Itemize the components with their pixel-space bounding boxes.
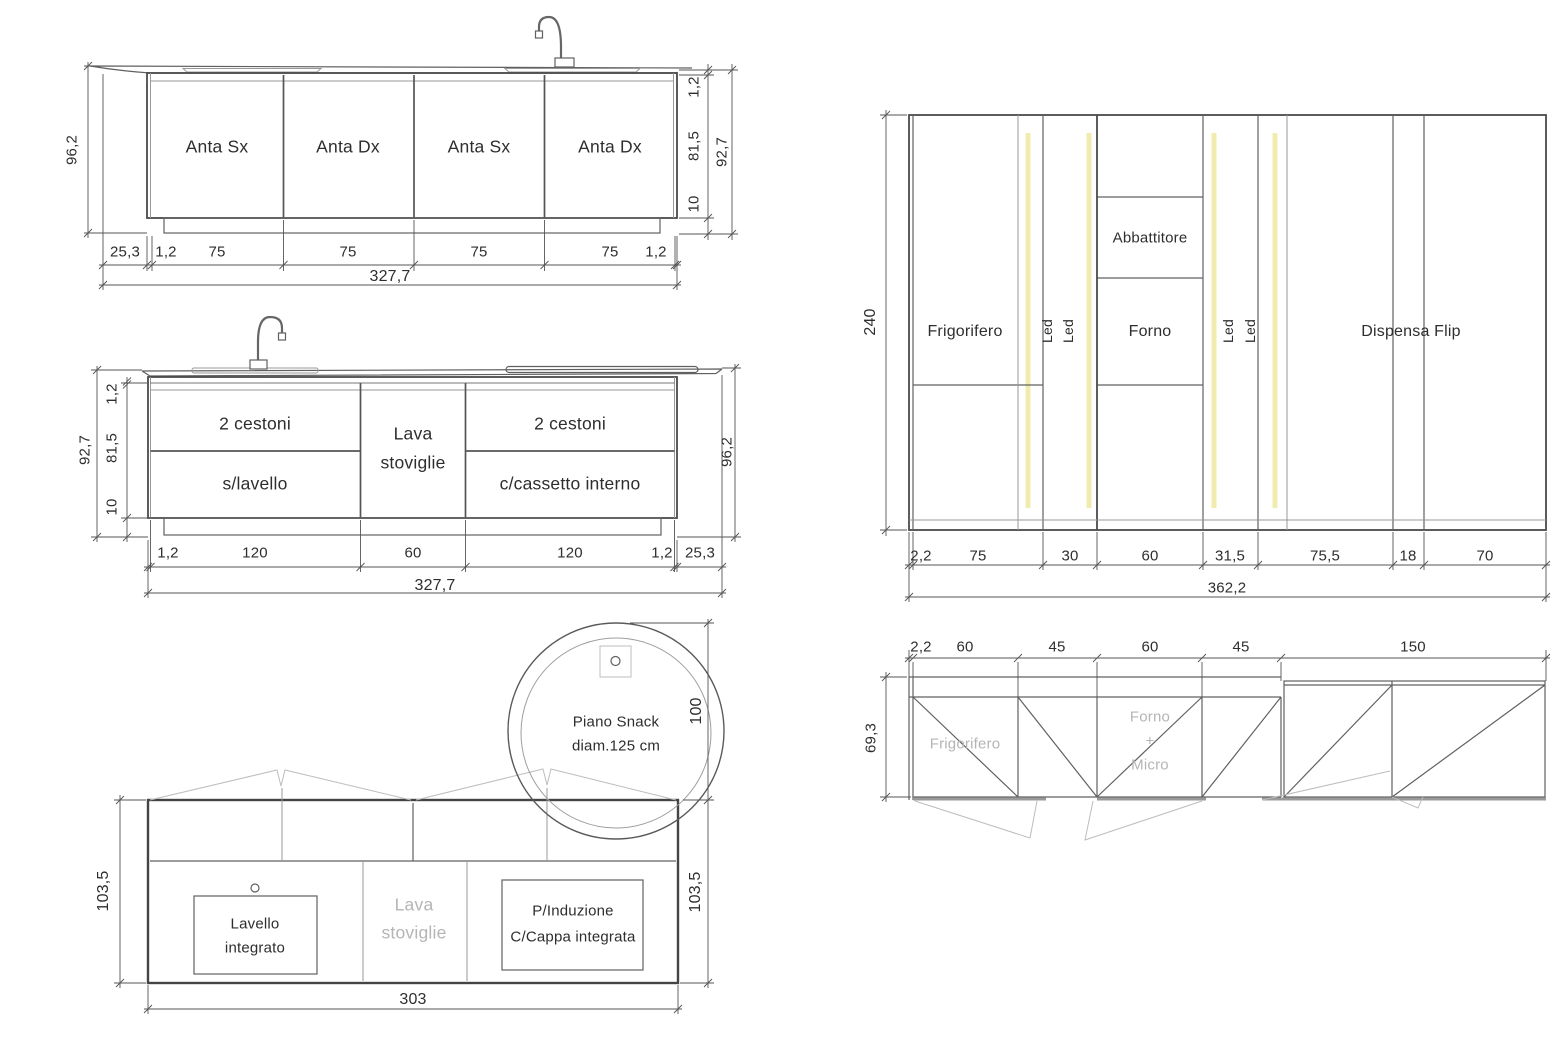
- drawing-linework: [0, 0, 1565, 1055]
- dim-label: 96,2: [65, 135, 80, 165]
- led-label: Led: [1243, 319, 1257, 343]
- snack-top-label: Piano Snack: [573, 715, 659, 730]
- dim-label: 25,3: [110, 245, 140, 260]
- oven-micro-label: Micro: [1131, 758, 1169, 773]
- dim-label: 1,2: [687, 76, 702, 97]
- dim-label: 100: [689, 697, 705, 724]
- dim-label: 75: [969, 549, 986, 564]
- dishwasher-label: stoviglie: [381, 924, 446, 942]
- dim-label: 60: [404, 546, 421, 561]
- dim-label: 81,5: [687, 131, 702, 161]
- dim-label: 2,2: [910, 549, 931, 564]
- section-label: 2 cestoni: [534, 415, 606, 433]
- snack-top-label: diam.125 cm: [572, 739, 660, 754]
- oven-label: Forno: [1129, 324, 1172, 340]
- led-label: Led: [1061, 319, 1075, 343]
- dim-label: 10: [105, 498, 120, 515]
- dim-total-label: 303: [399, 992, 426, 1008]
- dim-total-label: 327,7: [369, 269, 410, 285]
- dim-label: 75: [601, 245, 618, 260]
- dim-label: 30: [1061, 549, 1078, 564]
- dim-label: 120: [557, 546, 583, 561]
- blast-chiller-label: Abbattitore: [1113, 231, 1188, 246]
- pantry-label: Dispensa Flip: [1361, 324, 1461, 340]
- dim-label: 60: [1141, 549, 1158, 564]
- oven-micro-label: +: [1146, 734, 1155, 749]
- dim-label: 103,5: [96, 870, 112, 911]
- dim-label: 31,5: [1215, 549, 1245, 564]
- dim-label: 103,5: [688, 871, 704, 912]
- fridge-label: Frigorifero: [927, 324, 1002, 340]
- dim-total-label: 327,7: [414, 578, 455, 594]
- dim-label: 81,5: [105, 433, 120, 463]
- dim-label: 45: [1048, 640, 1065, 655]
- section-label: c/cassetto interno: [500, 475, 641, 493]
- dim-label: 25,3: [685, 546, 715, 561]
- dim-label: 1,2: [651, 546, 672, 561]
- door-label: Anta Dx: [316, 138, 380, 156]
- dim-label: 10: [687, 195, 702, 212]
- sink-label: integrato: [225, 941, 285, 956]
- dim-label: 92,7: [715, 137, 730, 167]
- door-label: Anta Dx: [578, 138, 642, 156]
- dim-label: 96,2: [720, 437, 735, 467]
- fridge-plan-label: Frigorifero: [930, 737, 1001, 752]
- led-label: Led: [1040, 319, 1054, 343]
- island-plan-linework: [114, 619, 724, 1014]
- tall-units-elevation-linework: [880, 110, 1550, 602]
- dim-label: 69,3: [864, 723, 879, 753]
- dim-label: 60: [1141, 640, 1158, 655]
- dishwasher-label: Lava: [395, 896, 434, 914]
- dim-label: 2,2: [910, 640, 931, 655]
- section-label: s/lavello: [222, 475, 287, 493]
- sink-label: Lavello: [231, 917, 280, 932]
- section-label: stoviglie: [380, 454, 445, 472]
- dim-total-label: 362,2: [1208, 581, 1247, 596]
- section-label: Lava: [394, 425, 433, 443]
- dim-label: 75,5: [1310, 549, 1340, 564]
- dim-label: 1,2: [155, 245, 176, 260]
- door-label: Anta Sx: [448, 138, 511, 156]
- dim-label: 75: [208, 245, 225, 260]
- dim-label: 70: [1476, 549, 1493, 564]
- dim-label: 45: [1232, 640, 1249, 655]
- dim-label: 60: [956, 640, 973, 655]
- dim-label: 150: [1400, 640, 1426, 655]
- led-label: Led: [1221, 319, 1235, 343]
- dim-label: 1,2: [157, 546, 178, 561]
- dim-label: 18: [1399, 549, 1416, 564]
- hob-label: C/Cappa integrata: [510, 930, 635, 945]
- dim-label: 1,2: [645, 245, 666, 260]
- door-label: Anta Sx: [186, 138, 249, 156]
- oven-micro-label: Forno: [1130, 710, 1170, 725]
- dim-label: 75: [339, 245, 356, 260]
- dim-label: 75: [470, 245, 487, 260]
- section-label: 2 cestoni: [219, 415, 291, 433]
- dim-label: 92,7: [78, 435, 93, 465]
- dim-label: 120: [242, 546, 268, 561]
- dim-label: 240: [863, 308, 879, 335]
- dim-label: 1,2: [105, 383, 120, 404]
- hob-label: P/Induzione: [532, 904, 613, 919]
- kitchen-technical-drawing: Anta Sx Anta Dx Anta Sx Anta Dx 25,3 1,2…: [0, 0, 1565, 1055]
